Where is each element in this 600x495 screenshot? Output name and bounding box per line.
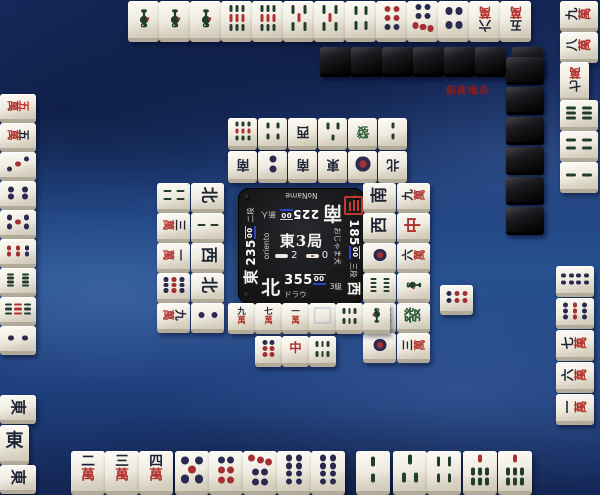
tile-W: 西	[191, 243, 224, 273]
tile-2s	[378, 118, 407, 150]
tile-2p	[0, 326, 36, 355]
tile-6m: 六萬	[469, 1, 500, 42]
bottom-rank: 3級	[330, 281, 342, 292]
tile-7s[interactable]	[463, 451, 497, 495]
tile-6p	[376, 1, 407, 42]
tile-4s[interactable]	[427, 451, 461, 495]
tile-8s	[363, 273, 396, 303]
tile-S: 南	[288, 151, 317, 183]
tile-back	[506, 57, 544, 85]
tile-2m[interactable]: 二萬	[71, 451, 105, 495]
tile-5s	[314, 1, 345, 42]
tile-N: 北	[191, 273, 224, 303]
tile-6p	[255, 336, 282, 367]
tile-4s	[345, 1, 376, 42]
tile-4p	[438, 1, 469, 42]
tile-1p	[363, 243, 396, 273]
tile-3p	[0, 152, 36, 181]
tile-E: 東	[0, 395, 36, 424]
tile-7s[interactable]	[498, 451, 532, 495]
stick-counters: 2 0	[238, 250, 365, 261]
tile-1s	[190, 1, 221, 42]
tile-8s	[0, 268, 36, 297]
tile-back	[506, 87, 544, 115]
tile-E: 東	[0, 465, 36, 494]
tile-3s[interactable]	[393, 451, 427, 495]
tile-8p	[556, 266, 594, 297]
tile-back	[506, 207, 544, 235]
top-score: 22500	[280, 208, 319, 222]
tile-back	[475, 47, 506, 77]
tile-3m[interactable]: 三萬	[105, 451, 139, 495]
tile-3m: 三萬	[397, 333, 430, 363]
player-info-bottom: 北 35500 ドラウ 3級	[238, 273, 365, 300]
tile-S: 南	[228, 151, 257, 183]
right-rank: 二段	[245, 207, 256, 222]
tile-W: 西	[288, 118, 317, 150]
tile-1p	[363, 333, 396, 363]
tile-9m: 九萬	[397, 183, 430, 213]
tile-W: 西	[363, 213, 396, 243]
tile-2p	[258, 151, 287, 183]
tile-back	[506, 117, 544, 145]
tile-9p	[556, 298, 594, 329]
tile-1s	[128, 1, 159, 42]
tile-back	[444, 47, 475, 77]
tile-back	[382, 47, 413, 77]
round-indicator: 東3局	[238, 230, 365, 251]
tile-4p	[0, 181, 36, 210]
tile-2s	[191, 213, 224, 243]
tile-6p[interactable]	[209, 451, 243, 495]
tile-E-turned: 東	[0, 425, 29, 465]
tile-7p	[407, 1, 438, 42]
rule-badge: 般南喰赤	[446, 82, 490, 97]
bottom-name: ドラウ	[284, 289, 307, 300]
tile-back	[506, 177, 544, 205]
tile-3m: 三萬	[157, 213, 190, 243]
table-stage: 南 22500 新人 NoName 18500 三段 西 おじゃま犬	[0, 0, 600, 495]
tile-2p	[191, 303, 224, 333]
tile-4s	[258, 118, 287, 150]
tile-1m: 一萬	[157, 243, 190, 273]
tile-F: 發	[348, 118, 377, 150]
bottom-score: 35500	[284, 273, 325, 288]
tile-9s	[0, 297, 36, 326]
tile-N: 北	[378, 151, 407, 183]
tile-5p[interactable]	[175, 451, 209, 495]
tile-N: 北	[191, 183, 224, 213]
tile-1s	[159, 1, 190, 42]
tile-1s	[397, 273, 430, 303]
honba-counter: 2	[275, 250, 298, 261]
tile-5p	[0, 210, 36, 239]
tile-S: 南	[363, 183, 396, 213]
tile-9s	[228, 118, 257, 150]
tile-6s	[336, 303, 363, 334]
tile-4s	[560, 131, 598, 162]
riichi-stick-icon	[306, 254, 319, 258]
tile-8p[interactable]	[277, 451, 311, 495]
tile-8m: 八萬	[560, 32, 598, 63]
tile-E: 東	[318, 151, 347, 183]
tile-5s	[283, 1, 314, 42]
tile-7m: 七萬	[255, 303, 282, 334]
tile-back	[320, 47, 351, 77]
tile-5m: 五萬	[500, 1, 531, 42]
tile-6m: 六萬	[397, 243, 430, 273]
tile-F: 發	[397, 303, 430, 333]
red-seal-icon	[344, 196, 363, 215]
tile-6p	[0, 239, 36, 268]
tile-9p	[157, 273, 190, 303]
center-info-panel: 南 22500 新人 NoName 18500 三段 西 おじゃま犬	[238, 188, 365, 304]
tile-5m: 五萬	[0, 123, 36, 152]
tile-back	[351, 47, 382, 77]
tile-4m[interactable]: 四萬	[139, 451, 173, 495]
tile-6m: 六萬	[556, 362, 594, 393]
tile-3s	[318, 118, 347, 150]
tile-1m: 一萬	[282, 303, 309, 334]
tile-9m: 九萬	[157, 303, 190, 333]
tile-6s	[309, 336, 336, 367]
tile-1s	[363, 303, 390, 334]
tile-6p	[440, 285, 473, 315]
tile-7m: 七萬	[556, 330, 594, 361]
tile-6s	[560, 100, 598, 131]
tile-back	[506, 147, 544, 175]
tile-8p[interactable]	[311, 451, 345, 495]
tile-1p	[348, 151, 377, 183]
tile-7p[interactable]	[243, 451, 277, 495]
tile-9s	[252, 1, 283, 42]
tile-C: 中	[397, 213, 430, 243]
riichi-counter: 0	[306, 250, 329, 261]
honba-stick-icon	[275, 254, 288, 258]
tile-2s[interactable]	[356, 451, 390, 495]
tile-7m-turned: 七萬	[560, 62, 589, 102]
tile-4s	[157, 183, 190, 213]
tile-9m: 九萬	[560, 1, 598, 32]
bottom-wind: 北	[261, 273, 280, 300]
tile-C: 中	[282, 336, 309, 367]
top-name: NoName	[285, 191, 317, 200]
tile-0m: 五萬	[0, 94, 36, 123]
tile-9m: 九萬	[228, 303, 255, 334]
tile-9s	[221, 1, 252, 42]
tile-1m: 一萬	[556, 394, 594, 425]
tile-2s	[560, 162, 598, 193]
tile-P	[309, 303, 336, 334]
tile-back	[413, 47, 444, 77]
